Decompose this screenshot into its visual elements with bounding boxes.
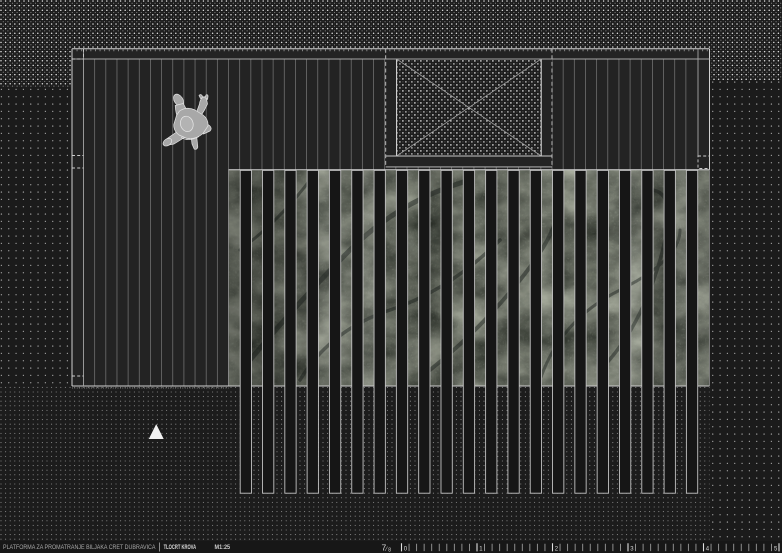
svg-text:TLOCRT KROVA: TLOCRT KROVA [164, 545, 197, 551]
svg-text:8: 8 [388, 548, 391, 553]
svg-text:PLATFORMA ZA PROMATRANJE BILJA: PLATFORMA ZA PROMATRANJE BILJAKA CRET DU… [3, 545, 156, 551]
svg-text:M1:25: M1:25 [215, 545, 231, 551]
